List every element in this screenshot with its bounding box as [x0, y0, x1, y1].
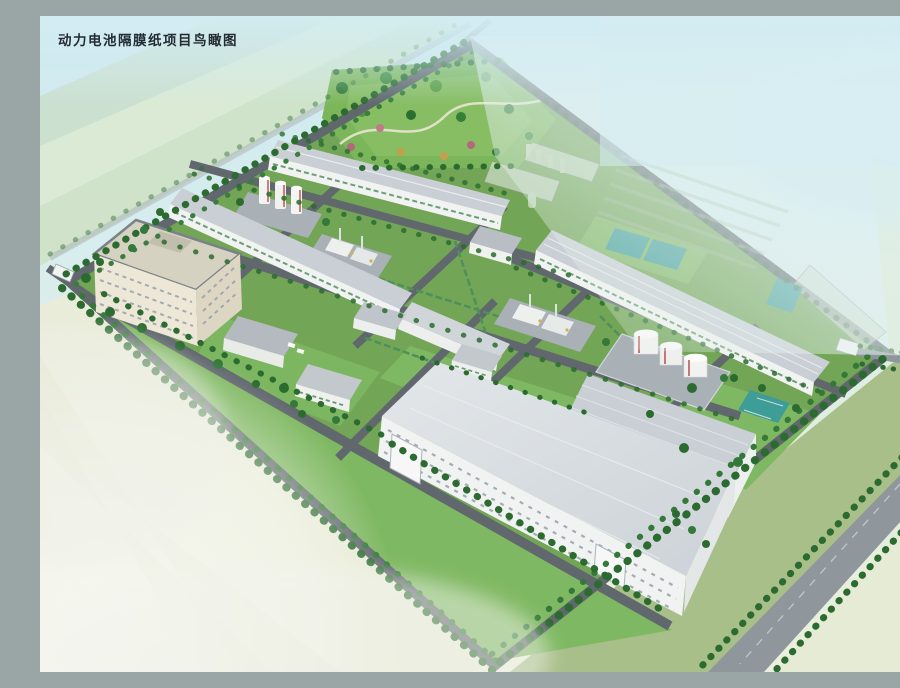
page-title: 动力电池隔膜纸项目鸟瞰图 [58, 29, 238, 49]
rendering-canvas [40, 16, 900, 672]
birdseye-rendering: 动力电池隔膜纸项目鸟瞰图 [40, 16, 900, 672]
